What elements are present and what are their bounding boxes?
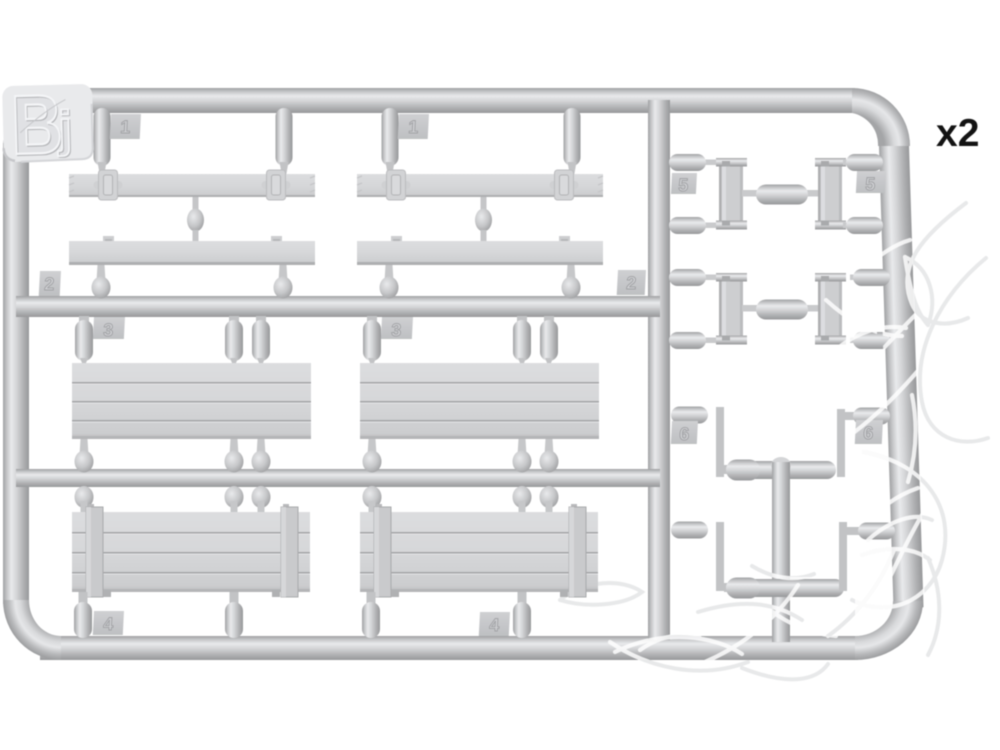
- svg-text:3: 3: [391, 320, 402, 340]
- svg-text:3: 3: [103, 320, 114, 340]
- svg-text:B: B: [10, 76, 64, 172]
- svg-text:6: 6: [679, 424, 690, 444]
- svg-text:4: 4: [489, 615, 500, 635]
- svg-text:4: 4: [103, 614, 114, 634]
- svg-text:2: 2: [44, 274, 55, 294]
- svg-text:1: 1: [408, 117, 419, 137]
- svg-text:1: 1: [120, 117, 131, 137]
- svg-text:j: j: [56, 100, 72, 156]
- svg-text:5: 5: [865, 174, 876, 194]
- svg-text:x2: x2: [936, 112, 979, 155]
- svg-text:2: 2: [626, 273, 637, 293]
- svg-text:5: 5: [678, 175, 689, 195]
